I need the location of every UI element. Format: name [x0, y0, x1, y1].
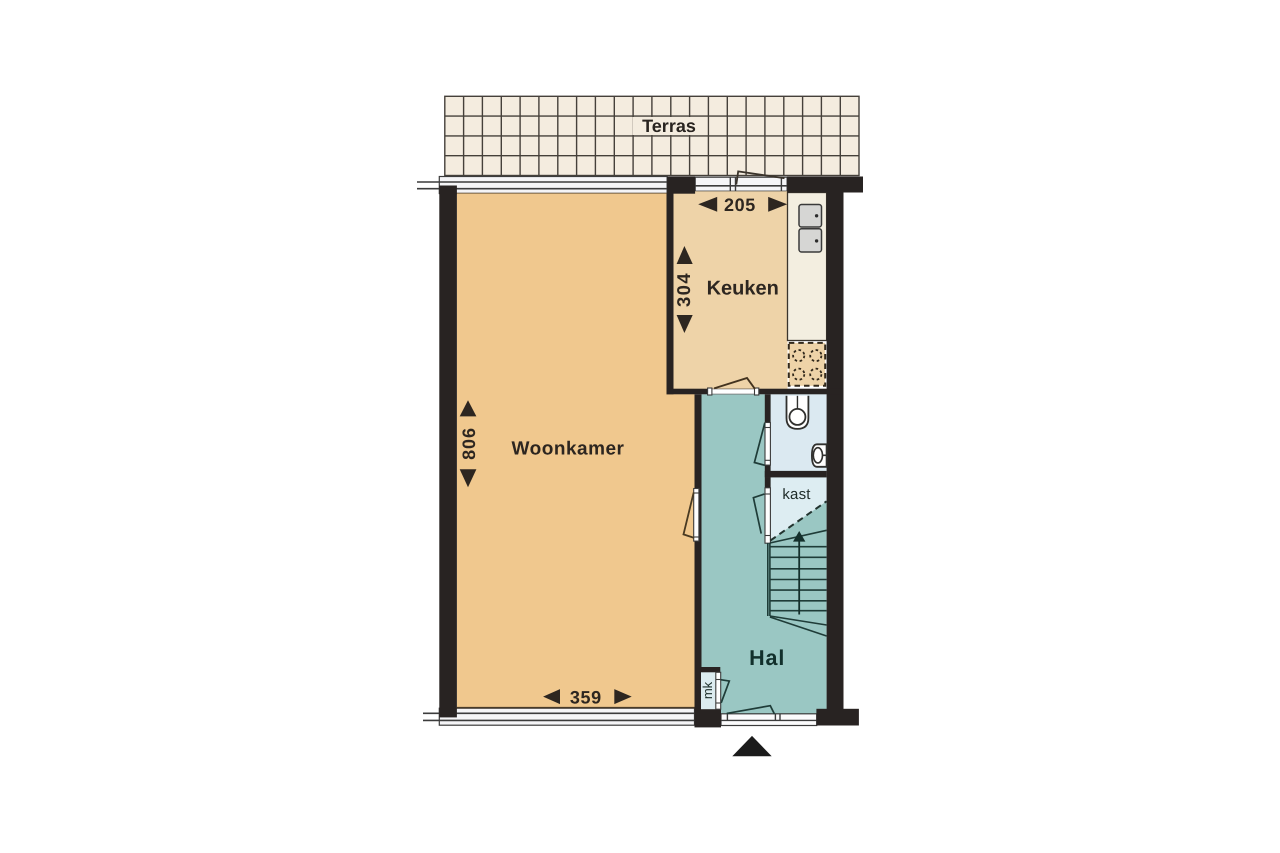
- svg-text:Terras: Terras: [642, 116, 696, 136]
- svg-text:Keuken: Keuken: [707, 278, 779, 300]
- svg-text:kast: kast: [782, 486, 811, 503]
- svg-text:205: 205: [724, 195, 756, 215]
- svg-text:359: 359: [570, 687, 602, 707]
- svg-text:806: 806: [459, 427, 479, 460]
- svg-text:mk: mk: [700, 681, 715, 699]
- svg-text:Hal: Hal: [749, 646, 785, 670]
- svg-text:Woonkamer: Woonkamer: [512, 439, 625, 460]
- svg-text:304: 304: [673, 272, 694, 307]
